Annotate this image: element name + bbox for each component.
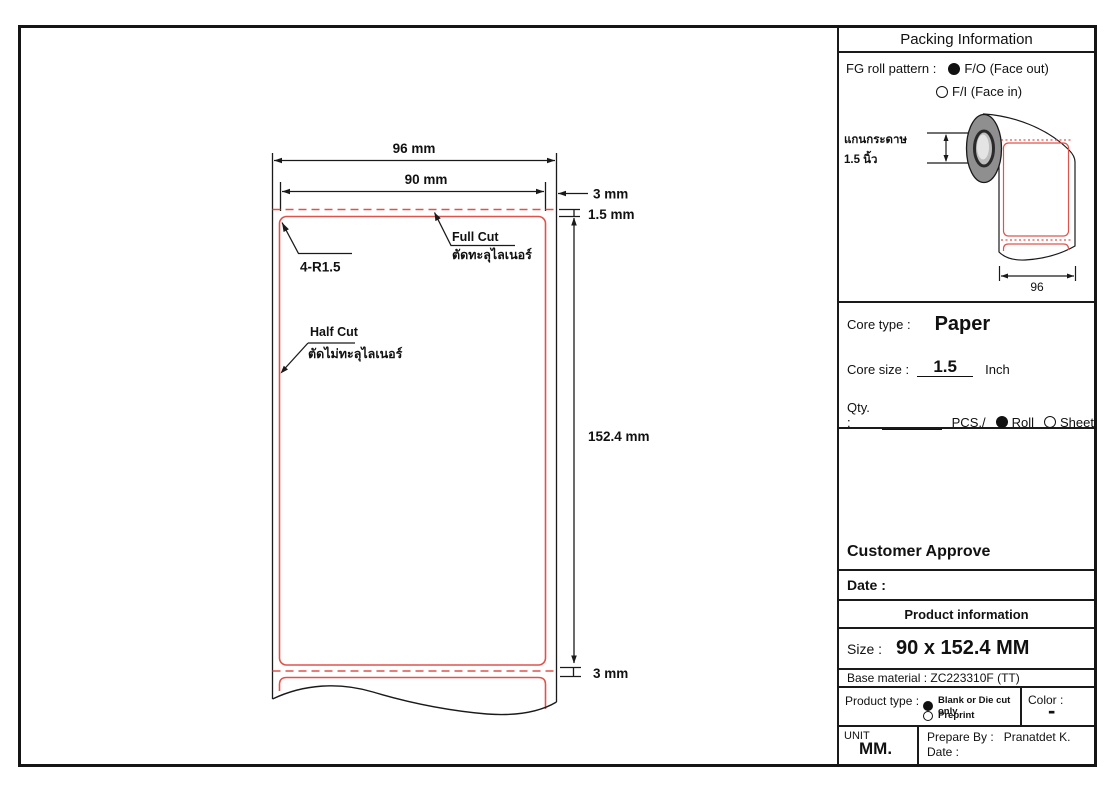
radio-unselected-icon[interactable] bbox=[923, 711, 933, 721]
fg-roll-section: FG roll pattern : F/O (Face out) F/I (Fa… bbox=[839, 53, 1094, 303]
roll-diagram: แกนกระดาษ 1.5 นิ้ว bbox=[839, 53, 1094, 301]
core-size-label: Core size : bbox=[847, 362, 909, 377]
half-cut-note: Half Cut ตัดไม่ทะลุไลเนอร์ bbox=[281, 325, 403, 374]
base-material-row: Base material : ZC223310F (TT) bbox=[839, 670, 1094, 688]
qty-label: Qty. : bbox=[847, 400, 876, 430]
sheet-border: 96 mm 90 mm 3 mm 1.5 mm bbox=[18, 25, 1097, 767]
full-cut-lines bbox=[273, 210, 557, 672]
strip-width-dimension bbox=[1000, 266, 1076, 281]
core-note-line2: 1.5 นิ้ว bbox=[844, 150, 878, 166]
dim-96mm-label: 96 mm bbox=[393, 141, 436, 156]
qty-option-sheet[interactable]: Sheet bbox=[1060, 415, 1094, 430]
base-material-text: Base material : ZC223310F (TT) bbox=[847, 671, 1020, 685]
radio-selected-icon[interactable] bbox=[996, 416, 1008, 428]
size-row: Size : 90 x 152.4 MM bbox=[839, 629, 1094, 670]
liner-edges bbox=[273, 153, 557, 702]
unit-row: UNIT MM. Prepare By : Pranatdet K. Date … bbox=[839, 727, 1094, 764]
dimension-152-4mm: 152.4 mm bbox=[571, 218, 649, 664]
color-cell: Color : - bbox=[1022, 688, 1094, 725]
spec-sheet-page: 96 mm 90 mm 3 mm 1.5 mm bbox=[0, 0, 1118, 787]
product-information-title: Product information bbox=[904, 607, 1028, 622]
unit-cell: UNIT MM. bbox=[839, 727, 919, 764]
qty-unit-prefix: PCS./ bbox=[952, 415, 986, 430]
core-size-unit: Inch bbox=[985, 362, 1010, 377]
product-type-option-2: Preprint bbox=[923, 710, 974, 721]
customer-approve-label: Customer Approve bbox=[847, 543, 990, 561]
qty-option-roll[interactable]: Roll bbox=[1012, 415, 1034, 430]
dim-90mm-label: 90 mm bbox=[405, 172, 448, 187]
dimension-1-5mm bbox=[559, 210, 580, 218]
product-type-cell: Product type : Blank or Die cut only Pre… bbox=[839, 688, 1022, 725]
prepare-date-label: Date : bbox=[927, 745, 959, 759]
dim-3mm-bottom-label: 3 mm bbox=[593, 666, 628, 681]
panel-title: Packing Information bbox=[900, 31, 1033, 48]
size-label: Size : bbox=[847, 641, 882, 657]
corner-radius-label: 4-R1.5 bbox=[300, 260, 341, 275]
qty-row: Qty. : PCS./ Roll Sheet bbox=[847, 400, 1094, 430]
core-type-row: Core type : Paper bbox=[847, 317, 990, 336]
prepare-by-value: Pranatdet K. bbox=[1004, 730, 1071, 744]
roll-core-icon bbox=[967, 115, 1002, 183]
core-type-label: Core type : bbox=[847, 317, 911, 332]
unit-value: MM. bbox=[859, 739, 892, 759]
half-cut-en: Half Cut bbox=[310, 325, 359, 339]
color-label: Color : bbox=[1028, 693, 1063, 707]
size-value: 90 x 152.4 MM bbox=[896, 637, 1029, 660]
date-row: Date : bbox=[839, 571, 1094, 601]
panel-header: Packing Information bbox=[839, 28, 1094, 53]
core-note-line1: แกนกระดาษ bbox=[844, 134, 907, 146]
core-section: Core type : Paper Core size : 1.5 Inch Q… bbox=[839, 303, 1094, 429]
product-type-label: Product type : bbox=[845, 694, 919, 708]
half-cut-th: ตัดไม่ทะลุไลเนอร์ bbox=[308, 346, 403, 362]
date-label: Date : bbox=[847, 577, 886, 593]
full-cut-en: Full Cut bbox=[452, 230, 499, 244]
color-value: - bbox=[1048, 698, 1055, 724]
product-type-row: Product type : Blank or Die cut only Pre… bbox=[839, 688, 1094, 727]
next-label-outline bbox=[280, 678, 546, 710]
qty-blank-field[interactable] bbox=[882, 416, 942, 430]
core-type-value: Paper bbox=[935, 313, 991, 336]
product-information-header: Product information bbox=[839, 601, 1094, 629]
strip-width-label: 96 bbox=[1030, 280, 1044, 294]
prepare-by-label: Prepare By : bbox=[927, 730, 994, 744]
dim-3mm-top-label: 3 mm bbox=[593, 187, 628, 202]
core-size-value[interactable]: 1.5 bbox=[917, 358, 973, 377]
dim-1-5mm-label: 1.5 mm bbox=[588, 207, 635, 222]
dim-152-4mm-label: 152.4 mm bbox=[588, 429, 650, 444]
dimension-3mm-top: 3 mm bbox=[558, 187, 628, 202]
corner-radius-note: 4-R1.5 bbox=[282, 223, 352, 275]
label-die-cut-outline bbox=[280, 217, 546, 666]
full-cut-th: ตัดทะลุไลเนอร์ bbox=[452, 247, 532, 263]
product-type-option-preprint[interactable]: Preprint bbox=[938, 710, 974, 721]
dimension-90mm: 90 mm bbox=[282, 172, 544, 194]
dimension-96mm: 96 mm bbox=[274, 141, 555, 163]
radio-unselected-icon[interactable] bbox=[1044, 416, 1056, 428]
full-cut-note: Full Cut ตัดทะลุไลเนอร์ bbox=[435, 213, 533, 264]
dimension-3mm-bottom bbox=[560, 668, 581, 677]
packing-information-panel: Packing Information FG roll pattern : F/… bbox=[837, 28, 1094, 764]
customer-approve-section: Customer Approve bbox=[839, 429, 1094, 571]
liner-tear-wave bbox=[273, 686, 557, 715]
prepare-cell: Prepare By : Pranatdet K. Date : bbox=[919, 727, 1094, 764]
core-size-row: Core size : 1.5 Inch bbox=[847, 358, 1010, 377]
